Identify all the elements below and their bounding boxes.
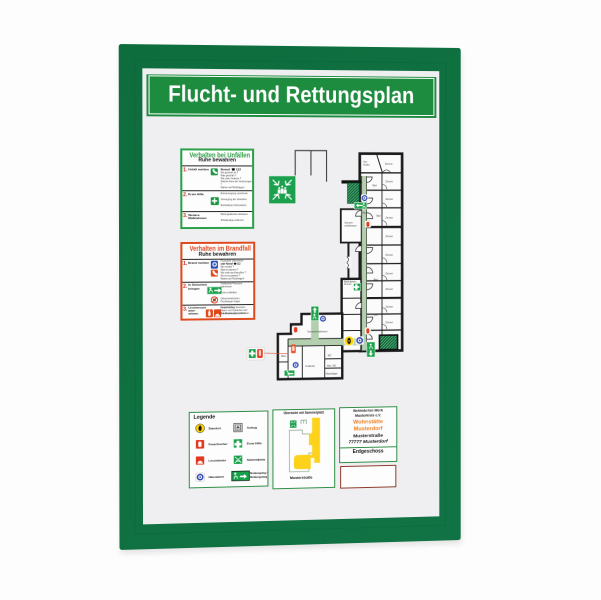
svg-text:Büro: Büro: [281, 355, 287, 358]
svg-text:Zimmer: Zimmer: [385, 180, 393, 183]
svg-text:schaftsraum: schaftsraum: [344, 225, 356, 228]
svg-text:Beh. WC: Beh. WC: [327, 366, 336, 368]
svg-text:Waschlager: Waschlager: [326, 372, 338, 375]
svg-text:Gemein-: Gemein-: [344, 223, 353, 225]
svg-text:Feuerlöscher: Feuerlöscher: [209, 442, 229, 446]
svg-text:Umkleide: Umkleide: [305, 366, 315, 368]
svg-text:Rettungsweg: Rettungsweg: [250, 474, 267, 478]
svg-text:Löschdecke: Löschdecke: [209, 458, 227, 462]
svg-text:Zimmer: Zimmer: [385, 306, 393, 309]
svg-text:Hausalarm: Hausalarm: [209, 474, 225, 478]
svg-text:Zimmer: Zimmer: [385, 217, 393, 220]
svg-text:Standort: Standort: [209, 426, 221, 430]
svg-text:WC: WC: [328, 355, 332, 357]
svg-text:Tee-: Tee-: [363, 162, 368, 164]
svg-text:Zimmer: Zimmer: [385, 288, 393, 291]
svg-text:Erste Hilfe: Erste Hilfe: [247, 441, 262, 445]
svg-text:Notausgang /: Notausgang /: [250, 470, 267, 474]
svg-text:Bad: Bad: [374, 279, 379, 281]
svg-text:Zimmer: Zimmer: [385, 198, 393, 201]
svg-text:Zimmer: Zimmer: [385, 272, 393, 275]
svg-text:Zimmer: Zimmer: [385, 321, 393, 324]
svg-text:Aufzug: Aufzug: [247, 425, 257, 429]
svg-text:Gemeinschaftsraum: Gemeinschaftsraum: [307, 330, 327, 333]
svg-text:Sammelplatz: Sammelplatz: [247, 457, 266, 461]
svg-text:Zimmer: Zimmer: [385, 163, 393, 166]
svg-text:Bad: Bad: [377, 216, 382, 218]
svg-text:Zimmer: Zimmer: [385, 235, 393, 238]
svg-text:Bad: Bad: [374, 315, 379, 317]
svg-text:Flur: Flur: [362, 212, 366, 215]
svg-text:zimmer: zimmer: [344, 283, 352, 286]
svg-text:Zimmer: Zimmer: [385, 254, 393, 257]
svg-text:Küche: Küche: [363, 165, 370, 167]
svg-text:Bad: Bad: [373, 185, 378, 187]
svg-text:Musterstraße: Musterstraße: [290, 475, 312, 479]
